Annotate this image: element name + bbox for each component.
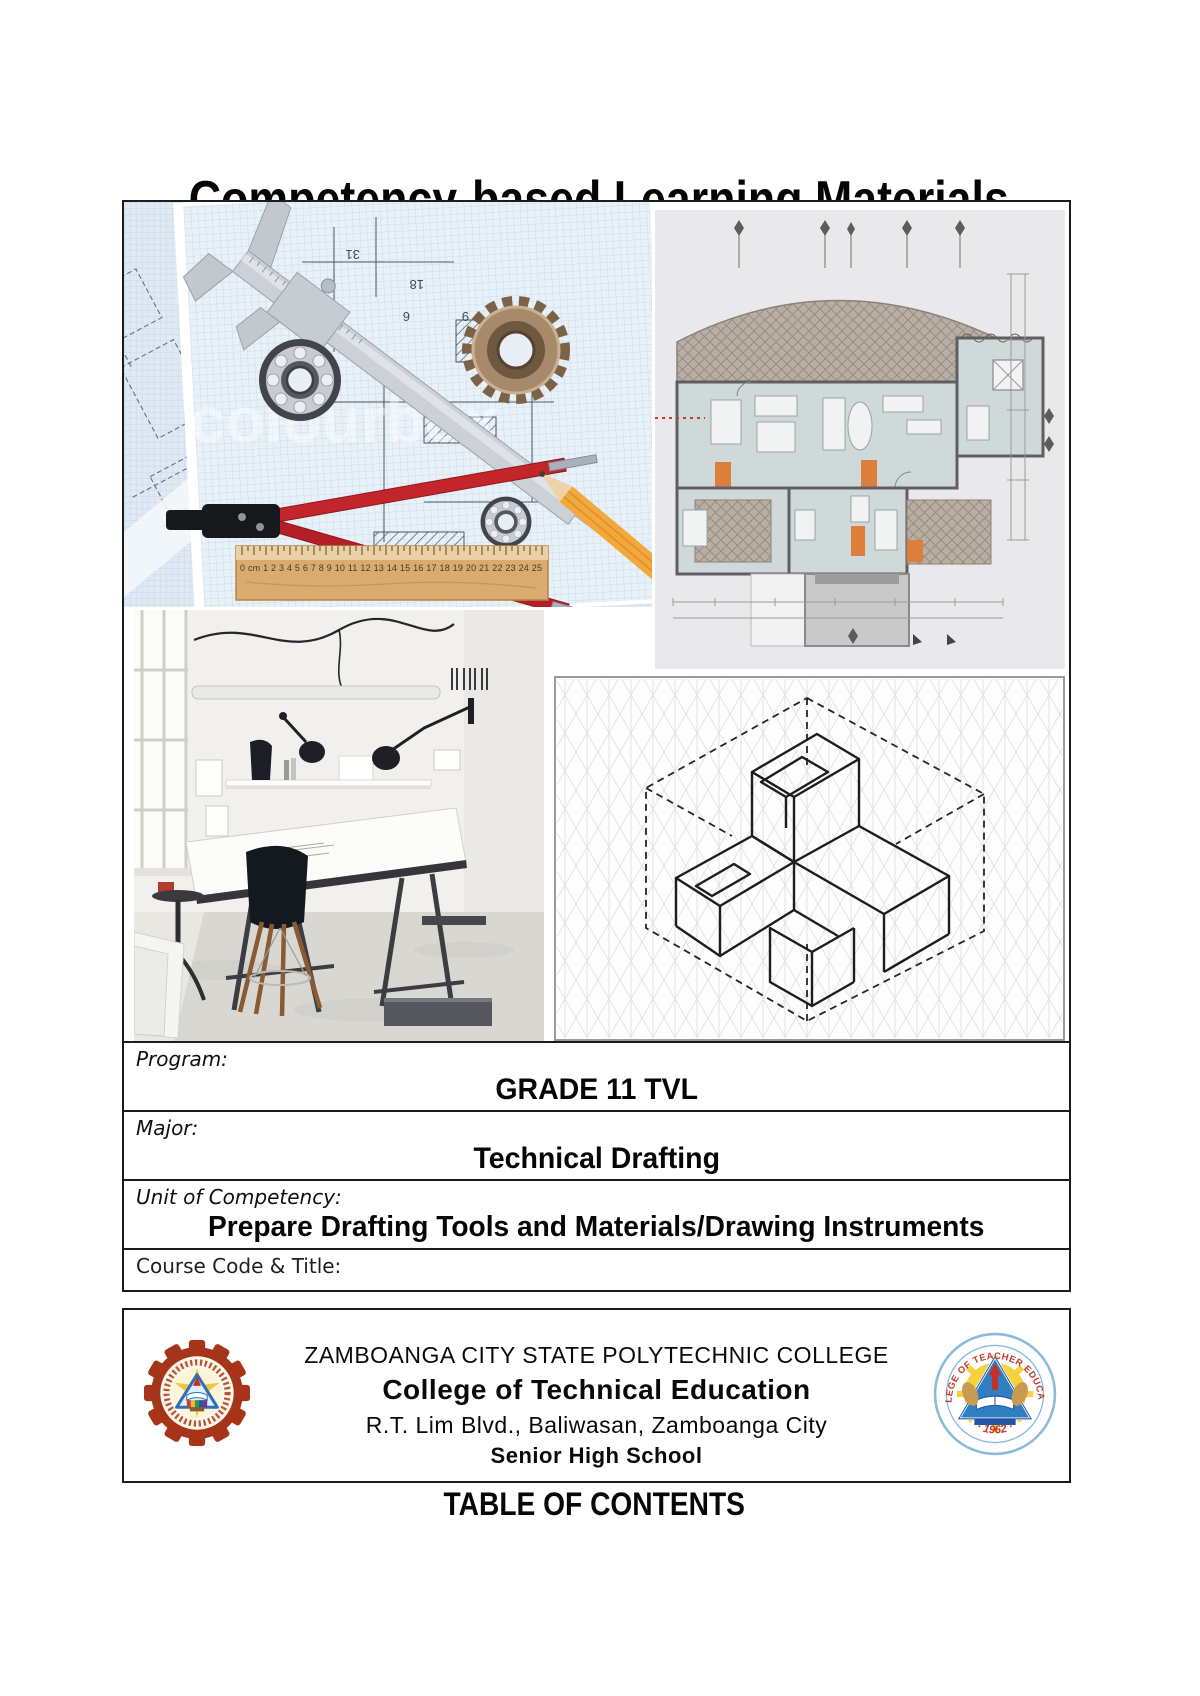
ruler-scale-numbers: 0 cm 1 2 3 4 5 6 7 8 9 10 11 12 13 14 15… [240,563,542,573]
plan-main-floor [677,382,957,488]
school-level: Senior High School [264,1445,929,1467]
unit-of-competency-label: Unit of Competency: [136,1186,342,1209]
course-code-row: Course Code & Title: [124,1250,1069,1290]
document-page: Competency-based Learning Materials [0,0,1200,1696]
paper-roll-rail [192,686,440,699]
ball-bearing-small [481,497,532,548]
table-of-contents-heading: TABLE OF CONTENTS [122,1487,1067,1522]
polytechnic-college-seal-icon [144,1340,250,1446]
plan-upper-right-room [957,334,1043,456]
school-address: R.T. Lim Blvd., Baliwasan, Zamboanga Cit… [264,1414,929,1437]
drafting-studio-photo [134,610,544,1041]
ball-bearing-large [259,339,341,421]
studio-window [134,610,192,876]
school-banner: ZAMBOANGA CITY STATE POLYTECHNIC COLLEGE… [122,1308,1071,1483]
college-name: College of Technical Education [264,1376,929,1404]
major-value: Technical Drafting [124,1142,1069,1175]
program-row: Program: GRADE 11 TVL [124,1043,1069,1112]
institution-name: ZAMBOANGA CITY STATE POLYTECHNIC COLLEGE [264,1344,929,1367]
plan-lower-rooms [677,488,991,574]
svg-text:9: 9 [462,309,469,324]
program-label: Program: [136,1048,228,1071]
major-label: Major: [136,1117,198,1140]
isometric-drawing-image [554,676,1065,1041]
drafting-tools-photo: 31 18 6 9 545 colourbox [124,202,652,607]
program-value: GRADE 11 TVL [124,1073,1069,1106]
floor-plan-image [655,210,1065,669]
svg-text:6: 6 [403,309,410,324]
unit-of-competency-row: Unit of Competency: Prepare Drafting Too… [124,1181,1069,1250]
course-code-value [124,1253,1069,1286]
cover-collage: 31 18 6 9 545 colourbox [124,202,1069,1043]
major-row: Major: Technical Drafting [124,1112,1069,1181]
cover-table: 31 18 6 9 545 colourbox [122,200,1071,1292]
svg-text:18: 18 [410,277,424,292]
plan-garage [751,574,909,646]
ceiling-vent [452,668,487,690]
isometric-grid [557,679,1062,1038]
school-banner-text: ZAMBOANGA CITY STATE POLYTECHNIC COLLEGE… [264,1310,929,1467]
wooden-ruler: 0 cm 1 2 3 4 5 6 7 8 9 10 11 12 13 14 15… [236,546,548,600]
unit-of-competency-value: Prepare Drafting Tools and Materials/Dra… [124,1212,1069,1244]
teacher-education-seal-icon: COLLEGE OF TEACHER EDUCATION · 1962 · [933,1332,1057,1456]
svg-text:31: 31 [346,247,360,262]
leaning-canvases [134,932,184,1038]
